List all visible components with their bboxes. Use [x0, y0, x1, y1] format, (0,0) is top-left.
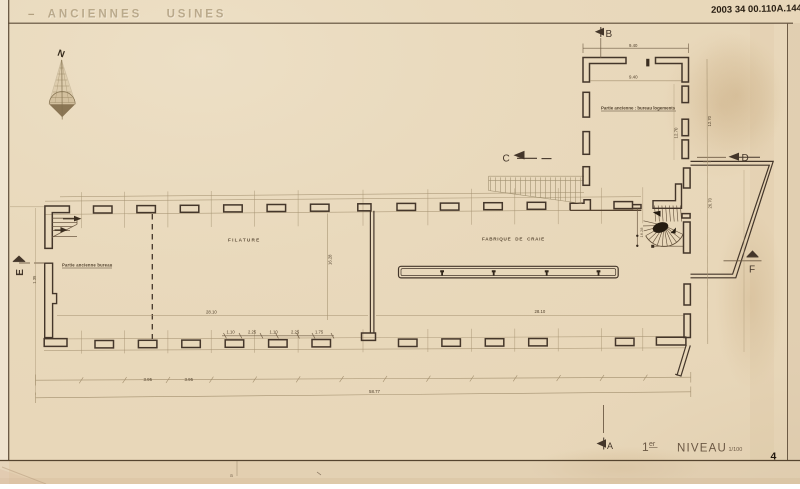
svg-text:16.28: 16.28: [639, 227, 644, 238]
svg-text:1.10: 1.10: [270, 330, 279, 335]
svg-text:FILATURE: FILATURE: [228, 238, 260, 243]
svg-text:2003 34 00.110A.144: 2003 34 00.110A.144: [711, 3, 800, 16]
svg-text:1: 1: [642, 440, 649, 454]
svg-text:12.70: 12.70: [707, 115, 712, 126]
svg-text:2.25: 2.25: [291, 330, 300, 335]
svg-text:2.25: 2.25: [248, 330, 257, 335]
svg-text:Partie ancienne bureau: Partie ancienne bureau: [62, 263, 113, 268]
svg-text:A: A: [607, 441, 613, 451]
svg-text:ANCIENNES: ANCIENNES: [48, 9, 143, 21]
svg-text:12.70: 12.70: [674, 127, 679, 139]
svg-text:9.40: 9.40: [629, 75, 638, 80]
svg-text:28.10: 28.10: [535, 309, 546, 314]
svg-text:28.10: 28.10: [206, 310, 217, 315]
svg-text:D: D: [742, 153, 749, 164]
svg-text:16.28: 16.28: [328, 254, 333, 265]
svg-text:F: F: [749, 264, 755, 275]
svg-text:NIVEAU: NIVEAU: [677, 443, 727, 455]
svg-text:USINES: USINES: [167, 9, 227, 21]
svg-text:1/100: 1/100: [729, 447, 743, 453]
svg-text:1.10: 1.10: [227, 330, 236, 335]
svg-text:Partie ancienne : bureau loge: Partie ancienne : bureau logements: [601, 106, 676, 111]
svg-text:26.70: 26.70: [708, 197, 713, 208]
svg-text:–: –: [28, 9, 35, 21]
svg-text:E: E: [15, 269, 26, 276]
svg-text:58.77: 58.77: [369, 389, 381, 394]
svg-text:er: er: [649, 441, 656, 448]
svg-text:C: C: [503, 154, 510, 165]
svg-text:1.35: 1.35: [32, 275, 37, 284]
svg-text:1.75: 1.75: [315, 330, 324, 335]
svg-text:FABRIQUE DE CRAIE: FABRIQUE DE CRAIE: [482, 237, 545, 242]
svg-text:3.95: 3.95: [185, 377, 194, 382]
svg-text:4: 4: [771, 451, 777, 463]
svg-text:3.95: 3.95: [144, 377, 153, 382]
svg-text:a: a: [230, 473, 233, 479]
svg-text:B: B: [606, 29, 613, 40]
svg-text:9.40: 9.40: [629, 43, 638, 48]
